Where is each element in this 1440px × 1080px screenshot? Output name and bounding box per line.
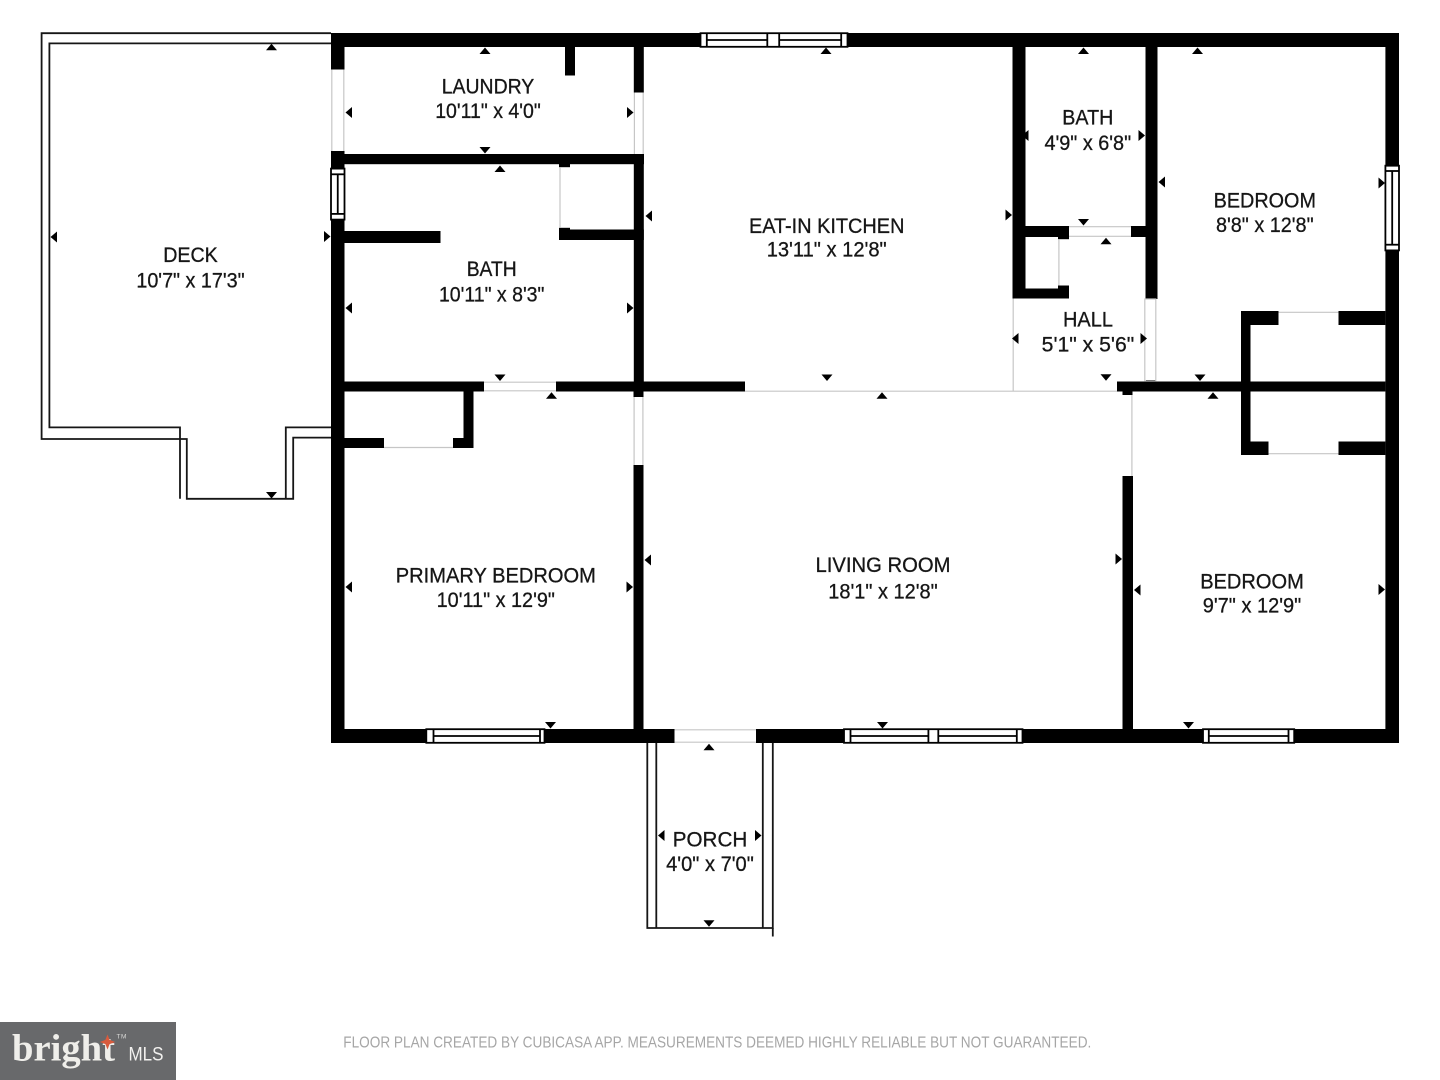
svg-text:BEDROOM: BEDROOM <box>1214 190 1316 213</box>
svg-text:10'11" x 12'9": 10'11" x 12'9" <box>437 589 555 612</box>
svg-text:FLOOR PLAN CREATED BY CUBICASA: FLOOR PLAN CREATED BY CUBICASA APP. MEAS… <box>343 1034 1091 1051</box>
svg-text:4'9" x 6'8": 4'9" x 6'8" <box>1044 132 1131 155</box>
svg-text:LIVING ROOM: LIVING ROOM <box>816 554 951 577</box>
svg-text:13'11" x 12'8": 13'11" x 12'8" <box>767 239 887 262</box>
svg-text:4'0" x 7'0": 4'0" x 7'0" <box>666 853 754 876</box>
svg-text:EAT-IN KITCHEN: EAT-IN KITCHEN <box>749 215 905 238</box>
svg-text:LAUNDRY: LAUNDRY <box>442 76 535 99</box>
svg-text:TM: TM <box>117 1034 127 1041</box>
svg-text:PRIMARY BEDROOM: PRIMARY BEDROOM <box>396 565 596 588</box>
svg-text:HALL: HALL <box>1063 309 1113 332</box>
svg-text:10'7" x 17'3": 10'7" x 17'3" <box>136 270 244 293</box>
svg-text:DECK: DECK <box>163 244 218 267</box>
svg-text:10'11" x 4'0": 10'11" x 4'0" <box>435 100 541 123</box>
svg-text:9'7" x 12'9": 9'7" x 12'9" <box>1203 595 1302 618</box>
svg-text:8'8" x 12'8": 8'8" x 12'8" <box>1216 214 1314 237</box>
svg-text:MLS: MLS <box>129 1045 164 1066</box>
svg-text:10'11" x 8'3": 10'11" x 8'3" <box>439 284 545 307</box>
svg-text:PORCH: PORCH <box>673 829 747 852</box>
svg-text:BATH: BATH <box>467 258 517 281</box>
svg-text:BATH: BATH <box>1062 107 1113 130</box>
svg-text:BEDROOM: BEDROOM <box>1200 571 1304 594</box>
svg-text:bright: bright <box>12 1028 115 1070</box>
svg-text:5'1" x 5'6": 5'1" x 5'6" <box>1042 334 1135 357</box>
svg-text:18'1" x 12'8": 18'1" x 12'8" <box>828 581 937 604</box>
